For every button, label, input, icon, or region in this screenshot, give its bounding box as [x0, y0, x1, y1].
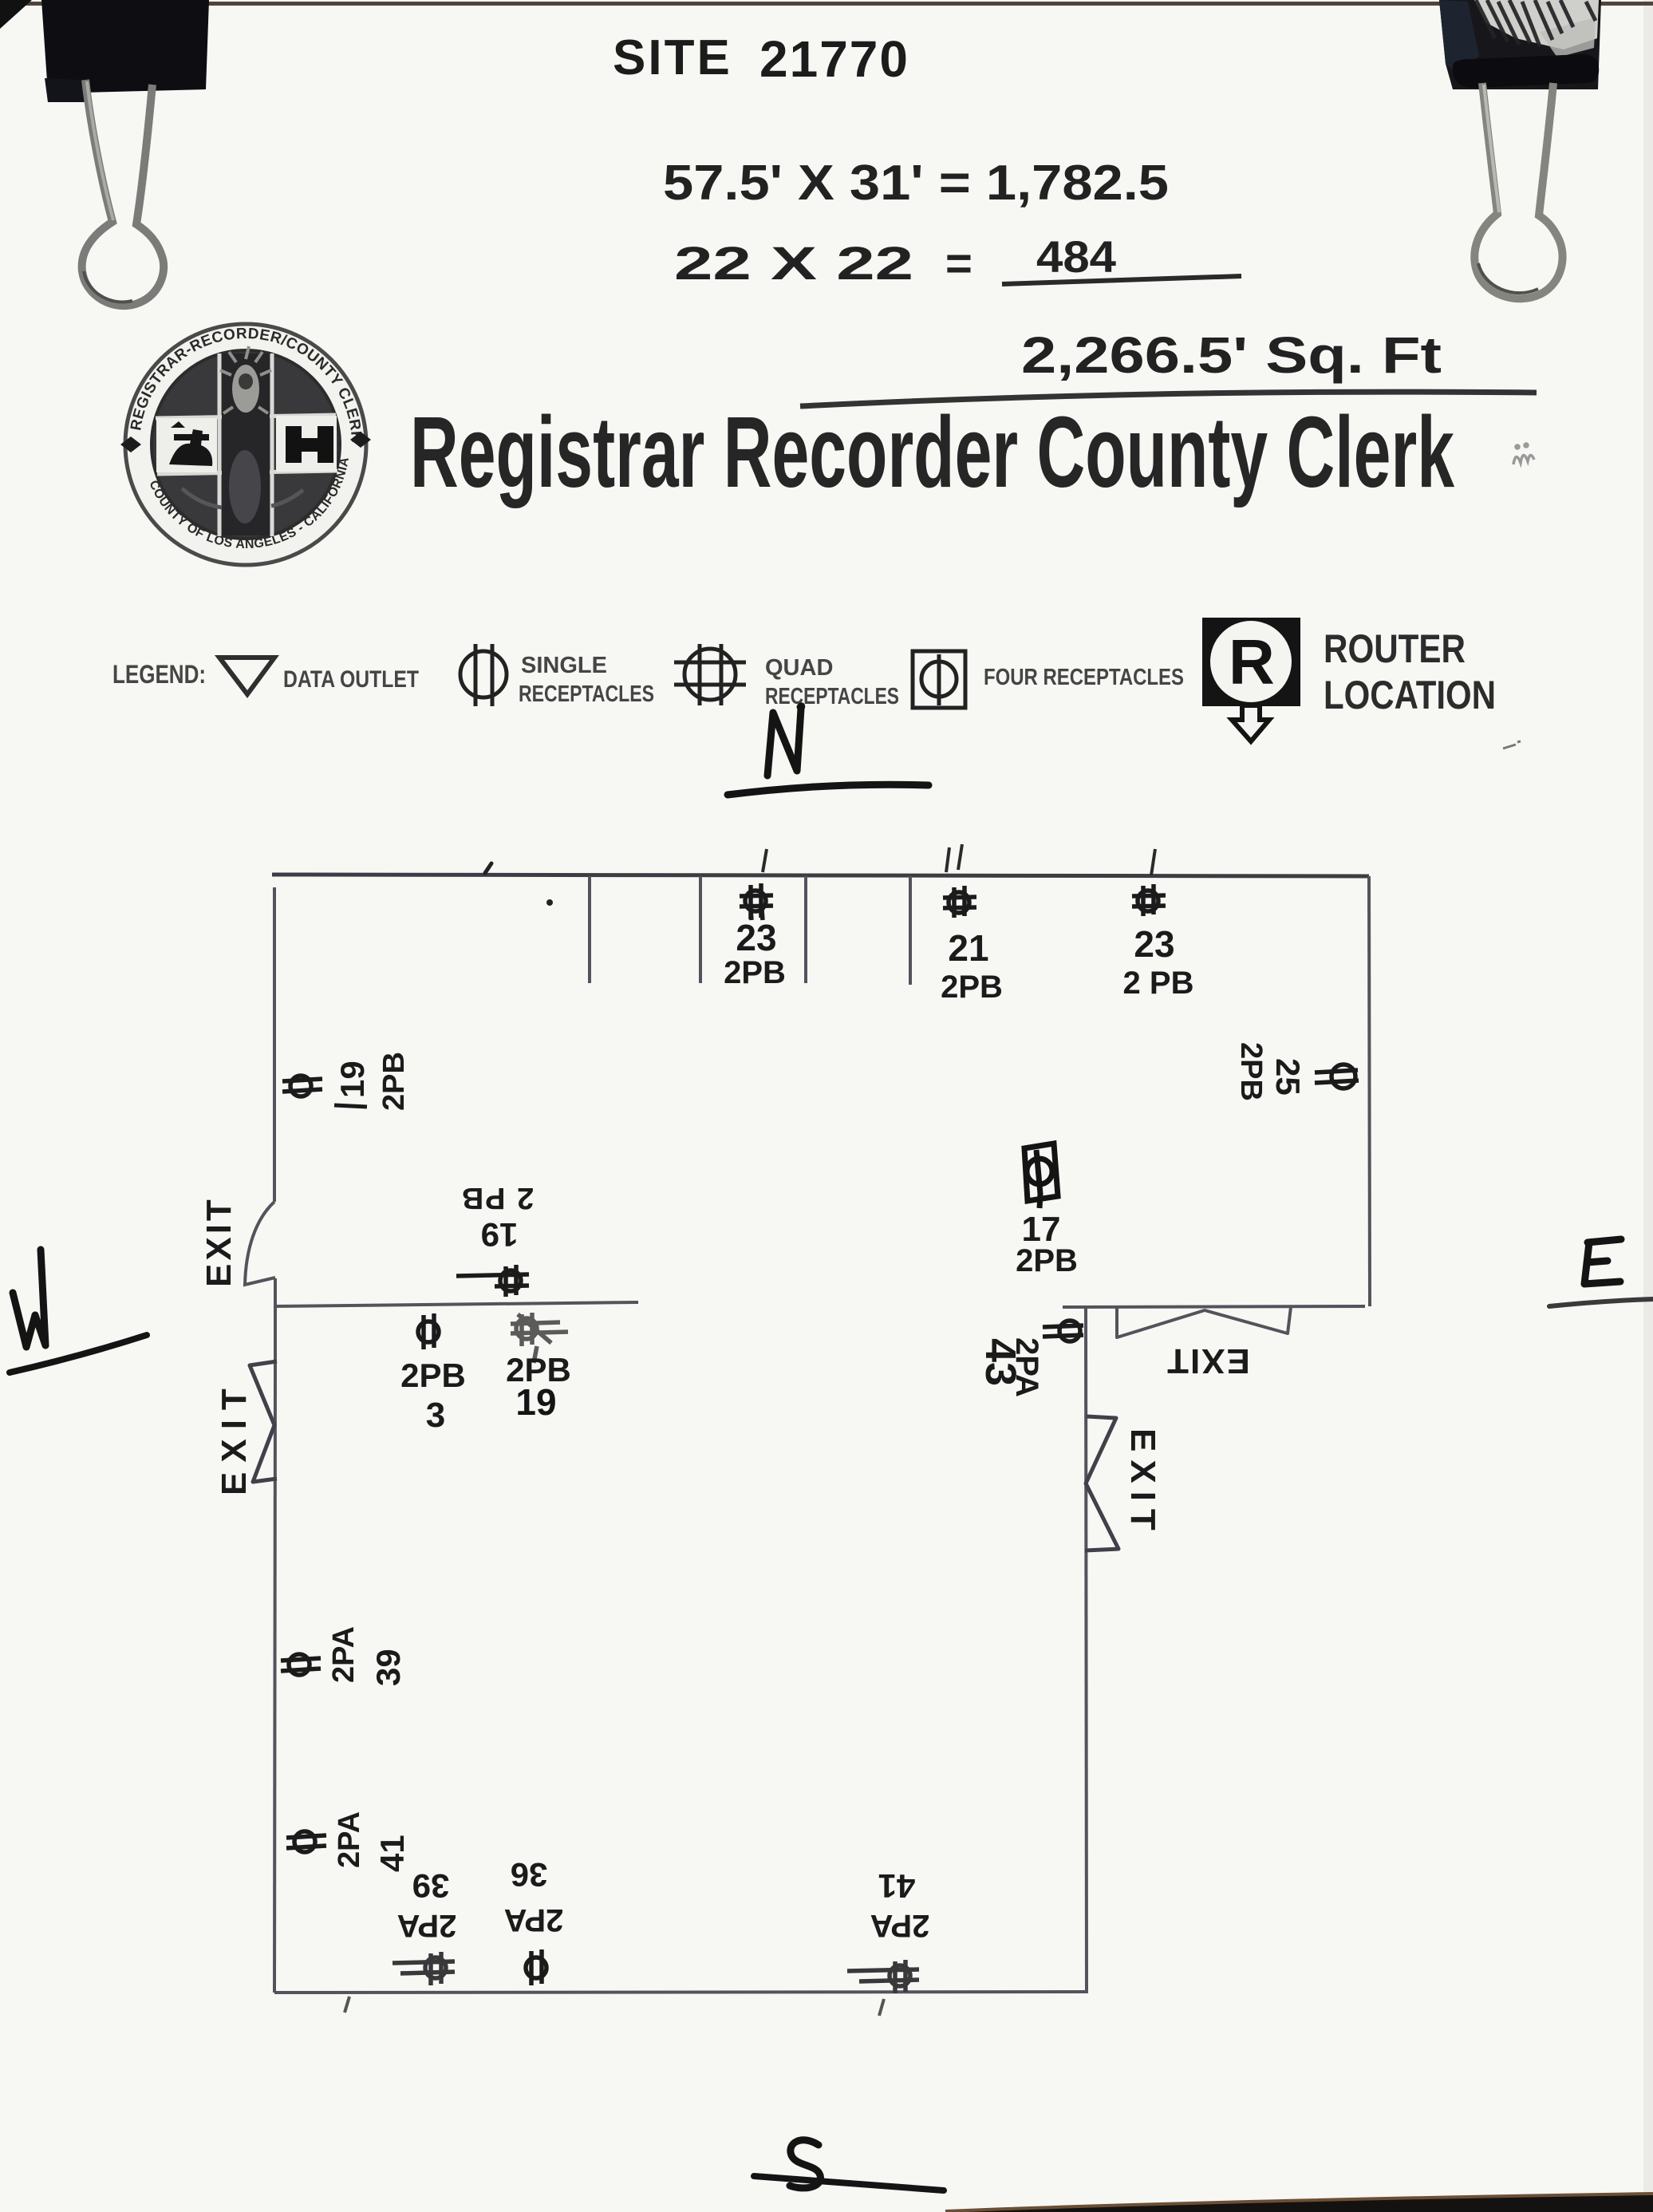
svg-text:Registrar Recorder County Cler: Registrar Recorder County Clerk: [410, 396, 1455, 508]
svg-text:RECEPTACLES: RECEPTACLES: [519, 681, 654, 707]
svg-text:21: 21: [948, 927, 988, 969]
svg-text:39: 39: [369, 1649, 407, 1686]
svg-text:2 PB: 2 PB: [1123, 966, 1194, 1001]
svg-text:39: 39: [412, 1867, 450, 1905]
svg-text:41: 41: [878, 1867, 916, 1905]
svg-text:2PB: 2PB: [941, 970, 1003, 1005]
svg-text:LEGEND:: LEGEND:: [112, 660, 206, 689]
svg-text:19: 19: [481, 1216, 519, 1254]
svg-text:SINGLE: SINGLE: [521, 653, 607, 678]
svg-text:2PA: 2PA: [1009, 1337, 1044, 1397]
svg-text:23: 23: [736, 917, 776, 958]
svg-text:LOCATION: LOCATION: [1324, 673, 1496, 717]
svg-text:57.5' X 31' = 1,782.5: 57.5' X 31' = 1,782.5: [663, 156, 1169, 211]
svg-text:SITE: SITE: [613, 30, 732, 85]
svg-text:2PB: 2PB: [1016, 1243, 1078, 1278]
svg-text:41: 41: [373, 1835, 411, 1872]
svg-text:2PA: 2PA: [504, 1902, 564, 1937]
svg-text:ROUTER: ROUTER: [1324, 626, 1466, 671]
svg-text:RECEPTACLES: RECEPTACLES: [765, 684, 899, 709]
svg-text:21770: 21770: [759, 30, 909, 88]
svg-text:2PA: 2PA: [333, 1811, 366, 1868]
svg-text:=: =: [945, 238, 972, 290]
svg-text:QUAD: QUAD: [765, 655, 833, 681]
svg-text:2PA: 2PA: [870, 1908, 930, 1943]
svg-text:EXIT: EXIT: [199, 1196, 239, 1287]
svg-text:2PB: 2PB: [377, 1052, 411, 1111]
svg-text:22 X 22: 22 X 22: [674, 238, 913, 290]
svg-text:19: 19: [515, 1381, 556, 1423]
svg-text:2PB: 2PB: [1234, 1042, 1268, 1101]
svg-text:FOUR RECEPTACLES: FOUR RECEPTACLES: [984, 665, 1184, 690]
svg-text:19: 19: [333, 1061, 371, 1098]
svg-text:25: 25: [1269, 1058, 1307, 1096]
svg-text:EXIT: EXIT: [215, 1379, 254, 1495]
svg-text:2PA: 2PA: [397, 1908, 457, 1943]
svg-text:23: 23: [1134, 923, 1174, 965]
svg-text:2PA: 2PA: [327, 1626, 361, 1683]
svg-text:2 PB: 2 PB: [460, 1181, 534, 1215]
svg-text:R: R: [1229, 626, 1275, 697]
svg-text:2PB: 2PB: [400, 1357, 466, 1394]
svg-text:DATA OUTLET: DATA OUTLET: [283, 666, 419, 693]
svg-text:2,266.5' Sq. Ft: 2,266.5' Sq. Ft: [1021, 326, 1442, 384]
svg-text:3: 3: [426, 1396, 445, 1435]
svg-text:484: 484: [1036, 231, 1116, 282]
svg-text:EXIT: EXIT: [1123, 1428, 1162, 1539]
svg-text:EXIT: EXIT: [1166, 1341, 1250, 1381]
svg-text:36: 36: [511, 1856, 548, 1894]
svg-text:2PB: 2PB: [724, 955, 786, 990]
